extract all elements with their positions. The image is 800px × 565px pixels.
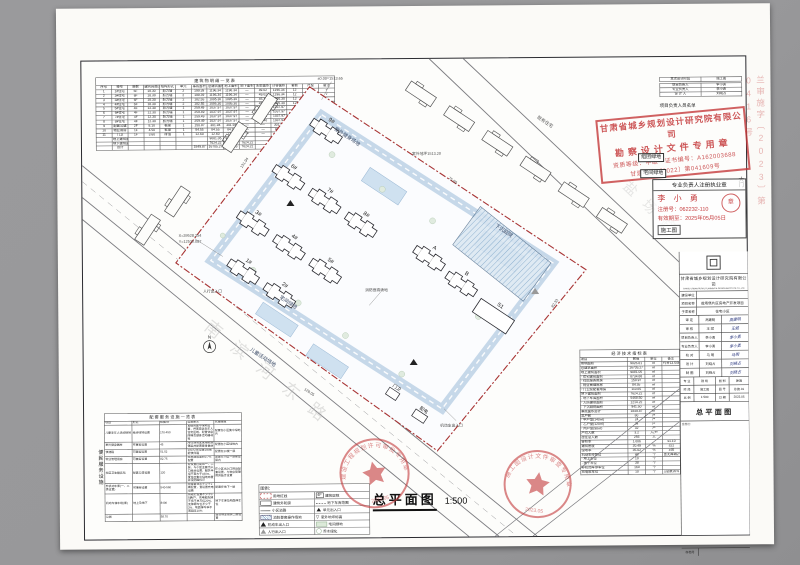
svg-text:机动车出入口: 机动车出入口 (440, 423, 463, 428)
drawing-title: 总平面图 1:500 (373, 489, 468, 512)
svg-text:±0.00=1513.65: ±0.00=1513.65 (317, 77, 342, 81)
facilities-category-label: 便民服务设施 (94, 449, 104, 485)
personnel-note: 项目负责人员名单 (660, 103, 696, 109)
stage-tag: 施工图 (658, 225, 681, 235)
drawing-title-name: 总平面图 (373, 489, 437, 512)
plan-box-label: 宅间绿地 (640, 169, 666, 178)
meta-row: 比 例1:500日 期2023.05 (680, 393, 748, 402)
svg-text:X=39528.354: X=39528.354 (179, 234, 202, 238)
svg-text:室外地坪1513.20: 室外地坪1513.20 (412, 151, 441, 156)
firm-logo (679, 251, 747, 274)
drawing-sheet: 兰审施字〔2023〕第0416号 (56, 3, 774, 550)
svg-text:Y=12530.087: Y=12530.087 (179, 240, 202, 244)
archive-row: 存档号 (682, 548, 750, 556)
signoff-blank-area: 会签栏： (681, 421, 750, 549)
svg-text:消防登高场地: 消防登高场地 (365, 287, 388, 292)
firm-name: 甘肃省城乡规划设计研究院有限公司 (680, 274, 748, 288)
drawing-frame: 南滨河东路 盐场路 (80, 55, 750, 540)
plan-box-label: 组团绿地 (638, 153, 664, 162)
svg-text:人行出入口: 人行出入口 (203, 289, 222, 294)
registration-stamp: 专业负责人注册执业章 李 小 勇 注册号：062232-110 有效期至：202… (652, 178, 746, 239)
registration-seal-circle: 章 (721, 193, 740, 212)
site-plan: 南滨河东路 盐场路 (81, 56, 749, 539)
scanned-sheet-photo: { "drawing_title":{"name":"总平面图","scale"… (0, 0, 800, 565)
drawing-title-scale: 1:500 (445, 496, 468, 506)
existing-label: 既有住宅 (536, 114, 555, 130)
staff-row: 制 图刘晓占刘晓占 (680, 368, 748, 377)
sheet-name: 总平面图 (681, 402, 749, 422)
title-block: 甘肃省城乡规划设计研究院有限公司 GANSU URBAN-RURAL PLANN… (679, 251, 750, 535)
svg-text:N: N (208, 335, 211, 340)
